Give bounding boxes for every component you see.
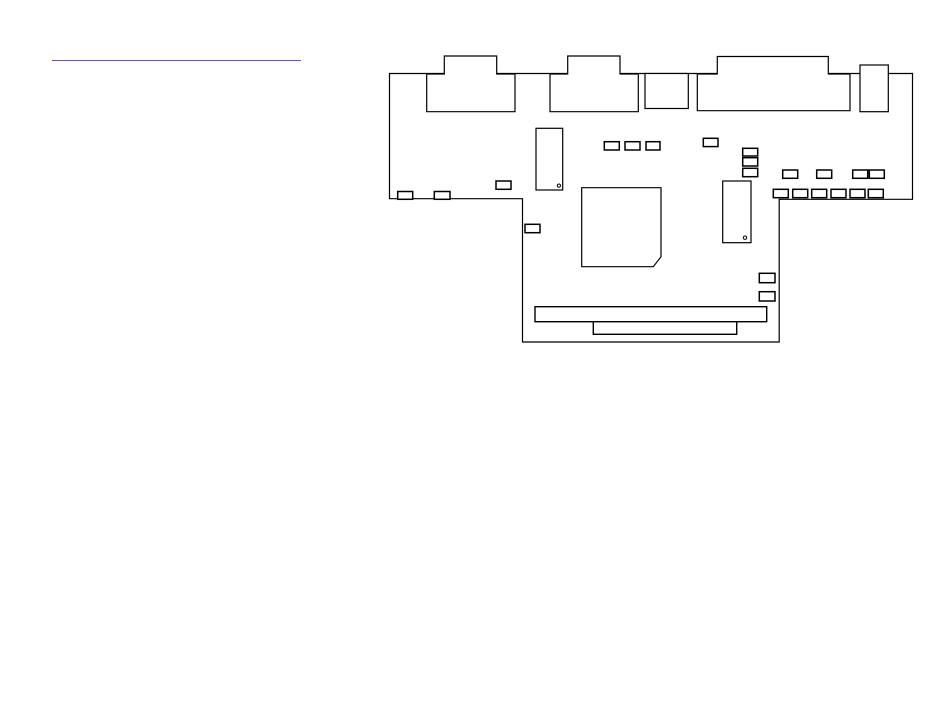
component-row6-1 (773, 189, 788, 197)
component-row4-2 (817, 170, 832, 178)
port-connector-4 (697, 57, 850, 111)
component-right-2 (759, 292, 775, 301)
component-left-1 (398, 192, 413, 200)
port-connector-2 (550, 56, 638, 112)
ic-dip-2 (723, 181, 751, 243)
ic-dip-1 (536, 128, 563, 190)
board-diagram (0, 0, 950, 725)
ic-dip-1-pin1-dot (557, 184, 560, 187)
component-row4-3 (853, 170, 868, 178)
component-left-3 (496, 181, 511, 189)
component-row6-2 (793, 189, 808, 197)
component-row4-1 (783, 170, 798, 178)
component-row6-5 (850, 189, 865, 197)
component-edge-1 (525, 224, 540, 232)
document-page (0, 0, 950, 725)
component-mid-3 (646, 142, 660, 150)
component-row6-3 (812, 189, 827, 197)
component-stack-2 (743, 158, 758, 166)
ic-dip-2-pin1-dot (743, 236, 746, 239)
component-row4-4 (869, 170, 884, 178)
component-left-2 (434, 192, 450, 200)
component-mid-2 (625, 142, 640, 150)
component-right-1 (759, 273, 775, 282)
component-stack-3 (743, 168, 758, 176)
component-row6-4 (831, 189, 846, 197)
port-connector-5 (860, 65, 888, 112)
component-row6-6 (868, 189, 883, 197)
component-mid-1 (604, 142, 619, 150)
memory-socket-inner (593, 322, 736, 335)
port-connector-1 (427, 56, 515, 112)
port-connector-3 (645, 74, 688, 109)
memory-socket (535, 307, 767, 322)
component-stack-1 (743, 148, 758, 156)
component-single-1 (703, 138, 718, 146)
main-chip (582, 188, 661, 267)
